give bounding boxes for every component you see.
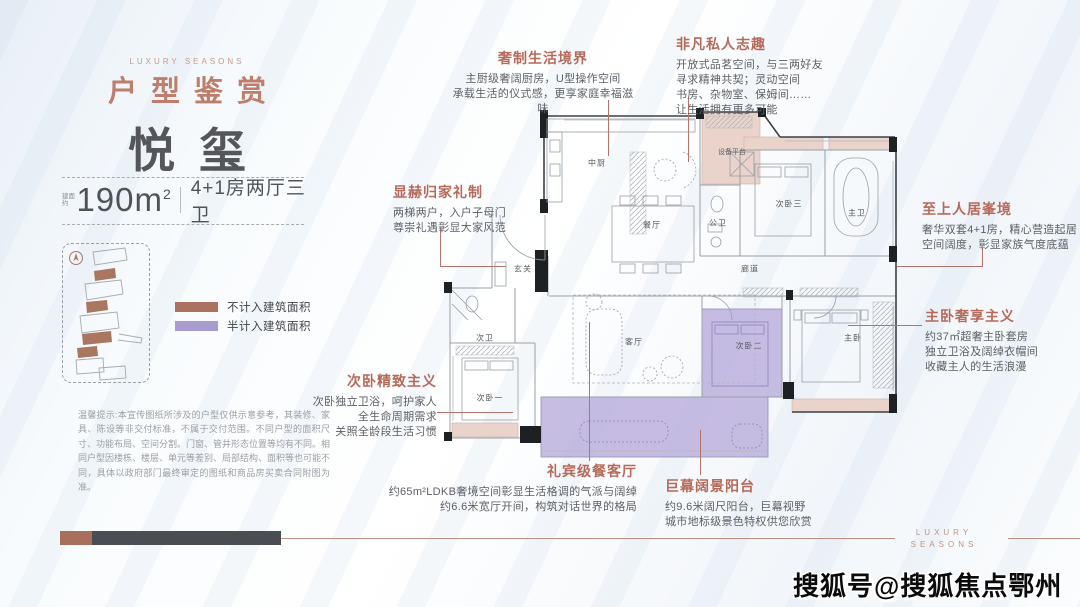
callout-hobby: 非凡私人志趣 开放式品茗空间，与三两好友 寻求精神共契；灵动空间 书房、杂物室、…: [676, 34, 823, 118]
legend-label-half-included: 半计入建筑面积: [227, 318, 311, 334]
unit-spec-row: 建面约 190m2 4+1房两厅三卫: [62, 181, 312, 219]
footer-rule-left: [281, 538, 895, 539]
area-prefix-label: 建面约: [62, 193, 75, 208]
callout-entry: 显赫归家礼制 两梯两户，入户子母门 尊崇礼遇彰显大家风范: [393, 182, 506, 236]
floor-plan: 中厨 餐厅 客厅 玄关 廊道 设备平台 公卫 次卫 主卫 次卧一 次卧二 次卧三…: [440, 106, 910, 463]
section-title: 户型鉴赏: [82, 68, 292, 110]
room-label-public-bath: 公卫: [709, 218, 727, 229]
room-label-second-bath: 次卫: [476, 333, 494, 344]
room-label-corridor: 廊道: [741, 264, 759, 275]
watermark-sohu: 搜狐号@搜狐焦点鄂州站: [793, 566, 1080, 607]
spec-divider: [180, 187, 181, 213]
leader-line-master: [848, 325, 922, 326]
floor-plan-drawing: [440, 106, 910, 463]
legend-label-not-included: 不计入建筑面积: [227, 299, 311, 315]
callout-dining: 礼宾级餐客厅 约65m²LDKB奢境空间彰显生活格调的气派与阔绰 约6.6米宽厅…: [365, 461, 637, 515]
leader-line-balcony: [700, 430, 701, 475]
room-label-living: 客厅: [625, 337, 643, 348]
brand-eyebrow: LUXURY SEASONS: [92, 57, 282, 66]
callout-bedroom: 次卧精致主义 次卧独立卫浴，呵护家人 全生命周期需求 关照全龄段生活习惯: [287, 371, 437, 440]
plan-interior-walls: [450, 112, 897, 438]
room-label-bedroom1: 次卧一: [477, 393, 504, 404]
legend-item-half-included: 半计入建筑面积: [175, 319, 311, 333]
legend-swatch-purple: [175, 321, 218, 331]
plan-structural-walls: [444, 108, 897, 443]
leader-line-dining: [589, 322, 590, 461]
footer-bar-dark: [92, 531, 281, 545]
legend-item-not-included: 不计入建筑面积: [175, 300, 311, 314]
divider-dashed-bottom: [62, 224, 304, 225]
leader-line-realm-h: [897, 266, 983, 267]
room-label-foyer: 玄关: [514, 264, 532, 275]
legend-swatch-brown: [175, 302, 218, 312]
room-label-bedroom3: 次卧三: [776, 199, 803, 210]
callout-balcony: 巨幕阔景阳台 约9.6米阔尺阳台，巨幕视野 城市地标级景色特权供您欣赏: [665, 476, 812, 530]
plan-hatched-areas: [456, 116, 894, 388]
callout-master: 主卧奢享主义 约37㎡超奢主卧套房 独立卫浴及阔绰衣帽间 收藏主人的生活浪漫: [925, 306, 1038, 375]
footer-bar-brown: [60, 531, 92, 545]
north-compass-icon: [70, 252, 83, 265]
layout-value: 4+1房两厅三卫: [191, 173, 312, 227]
room-label-equipment: 设备平台: [718, 147, 746, 157]
room-label-bedroom2: 次卧二: [736, 341, 763, 352]
unit-name: 悦玺: [72, 112, 302, 181]
footer-brand: LUXURY SEASONS: [903, 527, 985, 551]
area-legend: 不计入建筑面积 半计入建筑面积: [175, 300, 311, 338]
room-label-kitchen: 中厨: [588, 158, 606, 169]
callout-realm: 至上人居峯境 奢华双套4+1房，精心营造起居 空间阔度，彰显家族气度底蕴: [922, 199, 1077, 253]
callout-kitchen: 奢制生活境界 主厨级奢阔厨房，U型操作空间 承载生活的仪式感，更享家庭幸福滋味: [450, 48, 636, 117]
room-label-master-bath: 主卫: [848, 208, 866, 219]
footer-rule-right: [1008, 538, 1080, 539]
leader-line-entry-h: [440, 266, 506, 267]
site-plan: [62, 243, 150, 383]
poster-canvas: LUXURY SEASONS 户型鉴赏 悦玺 建面约 190m2 4+1房两厅三…: [0, 0, 1080, 607]
area-value: 190m2: [76, 181, 171, 219]
room-label-dining: 餐厅: [643, 220, 661, 231]
site-plan-graphic: [63, 244, 149, 382]
leader-line-bedroom: [437, 412, 513, 413]
room-label-master-bedroom: 主卧: [844, 333, 862, 344]
site-plan-buildings-outline: [76, 248, 142, 380]
